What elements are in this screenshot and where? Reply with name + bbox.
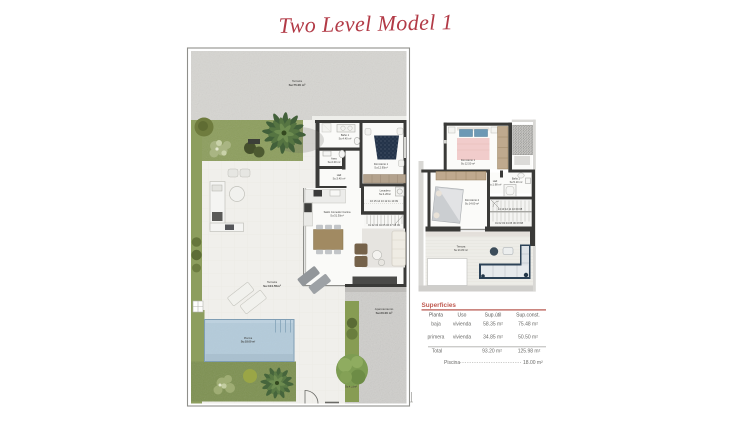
svg-text:Su:4.26m²: Su:4.26m² <box>379 192 391 196</box>
svg-text:Sup.const.: Sup.const. <box>516 313 540 319</box>
svg-text:Su:104.55m²: Su:104.55m² <box>263 284 281 288</box>
svg-text:Su:20.00 m²: Su:20.00 m² <box>376 311 393 315</box>
svg-text:Uso: Uso <box>458 313 467 319</box>
svg-text:01 02 03 04 05 06 07/08: 01 02 03 04 05 06 07/08 <box>495 221 524 225</box>
svg-text:Su:75.06 m²: Su:75.06 m² <box>289 83 306 87</box>
svg-text:Planta: Planta <box>429 313 443 319</box>
svg-text:Su:4.40 m²: Su:4.40 m² <box>339 136 352 140</box>
svg-text:vivienda: vivienda <box>453 335 472 341</box>
svg-text:Dormitorio 1: Dormitorio 1 <box>374 162 389 166</box>
svg-text:18.00 m²: 18.00 m² <box>523 360 543 366</box>
svg-text:Hall: Hall <box>337 173 342 177</box>
svg-text:Su:1.98 m²: Su:1.98 m² <box>489 182 502 186</box>
svg-text:Terraza: Terraza <box>457 245 466 249</box>
svg-text:Su:12.50 m²: Su:12.50 m² <box>461 161 475 165</box>
svg-text:Su:21.80 m²: Su:21.80 m² <box>454 248 468 252</box>
svg-text:Dormitorio 1: Dormitorio 1 <box>461 158 476 162</box>
svg-text:Su:31.30m²: Su:31.30m² <box>330 213 344 217</box>
svg-text:primera: primera <box>428 335 445 341</box>
svg-text:34.85 m²: 34.85 m² <box>483 335 503 341</box>
svg-text:Total: Total <box>432 349 443 355</box>
svg-text:Su:18.00 m²: Su:18.00 m² <box>241 340 256 344</box>
svg-text:14 13 12 11 10 09 08: 14 13 12 11 10 09 08 <box>498 207 523 211</box>
svg-text:01 02 03 04 05 06 07 08 09: 01 02 03 04 05 06 07 08 09 <box>368 223 400 227</box>
svg-text:Aseo: Aseo <box>331 157 337 161</box>
svg-text:125.98 m²: 125.98 m² <box>518 349 541 355</box>
svg-text:Lavadero: Lavadero <box>380 189 391 193</box>
svg-text:Su:3.40 m²: Su:3.40 m² <box>333 176 346 180</box>
svg-text:Piscina: Piscina <box>444 360 460 366</box>
svg-text:vivienda: vivienda <box>453 322 472 328</box>
svg-text:16 15 14 13 12 11 10 09: 16 15 14 13 12 11 10 09 <box>370 199 398 203</box>
svg-text:93.20 m²: 93.20 m² <box>482 349 502 355</box>
svg-text:Salón Comedor Cocina: Salón Comedor Cocina <box>324 210 351 214</box>
svg-text:Baño 1: Baño 1 <box>341 133 350 137</box>
svg-text:Dormitorio 2: Dormitorio 2 <box>465 198 480 202</box>
svg-text:Hall: Hall <box>493 179 498 183</box>
svg-text:Su:14.60 m²: Su:14.60 m² <box>465 201 479 205</box>
svg-text:50.50 m²: 50.50 m² <box>518 335 538 341</box>
svg-text:Piscina: Piscina <box>244 336 253 340</box>
svg-text:Su:5.10 m²: Su:5.10 m² <box>510 180 523 184</box>
svg-text:Su:2.00 m²: Su:2.00 m² <box>328 160 341 164</box>
svg-text:Sup.útil: Sup.útil <box>485 313 502 319</box>
svg-text:Su:12.95m²: Su:12.95m² <box>374 165 388 169</box>
svg-text:baja: baja <box>431 322 441 328</box>
svg-text:Two Level Model 1: Two Level Model 1 <box>278 9 453 38</box>
svg-text:58.35 m²: 58.35 m² <box>483 322 503 328</box>
svg-text:75.48 m²: 75.48 m² <box>518 322 538 328</box>
svg-text:Superficies: Superficies <box>422 302 457 309</box>
